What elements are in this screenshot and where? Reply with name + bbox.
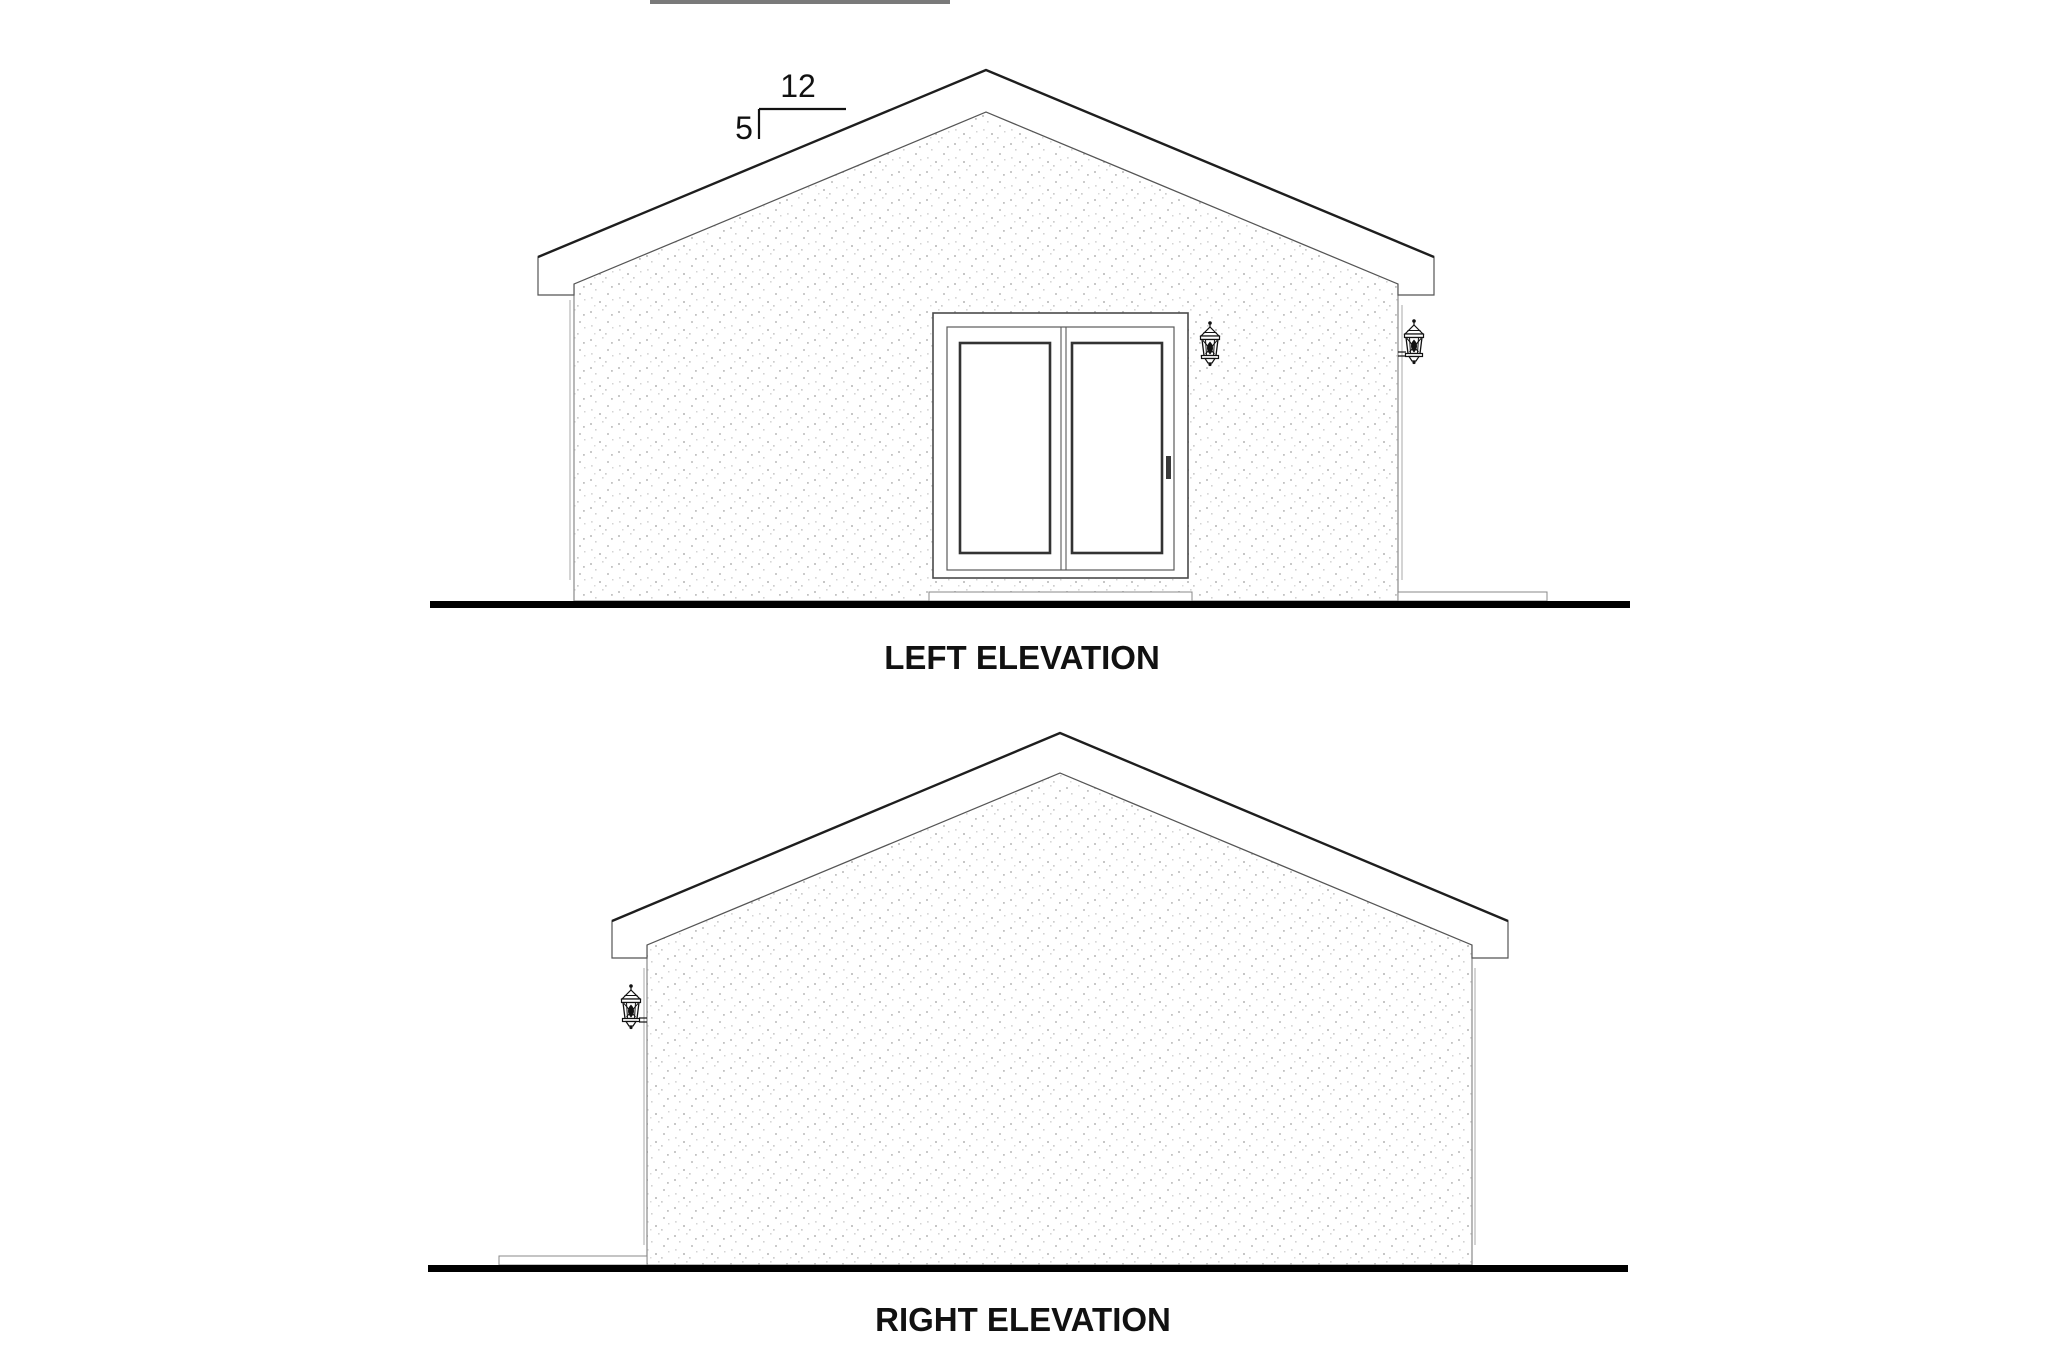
wall-lantern-icon <box>622 984 641 1029</box>
pitch-rise-label: 5 <box>735 112 753 144</box>
ground-line <box>428 1265 1628 1272</box>
door-glass-left <box>960 343 1050 553</box>
right-elevation-label: RIGHT ELEVATION <box>875 1302 1171 1338</box>
pitch-run-label: 12 <box>780 70 816 102</box>
door-step <box>929 592 1192 601</box>
gable-wall <box>647 773 1472 1265</box>
concrete-pad <box>499 1256 647 1265</box>
lantern-bracket <box>639 1018 647 1022</box>
concrete-pad <box>1398 592 1547 601</box>
sliding-glass-door <box>933 313 1188 578</box>
ground-line <box>430 601 1630 608</box>
elevation-sheet: 12 5 LEFT ELEVATION RIGHT ELEVATION <box>0 0 2048 1346</box>
door-glass-right <box>1072 343 1162 553</box>
wall-lantern-icon <box>1405 319 1424 364</box>
sheet-edge-artifact <box>650 0 950 4</box>
door-handle <box>1166 456 1171 479</box>
left-elevation-drawing <box>430 70 1630 608</box>
right-elevation-drawing <box>428 733 1628 1272</box>
left-elevation-label: LEFT ELEVATION <box>884 640 1160 676</box>
